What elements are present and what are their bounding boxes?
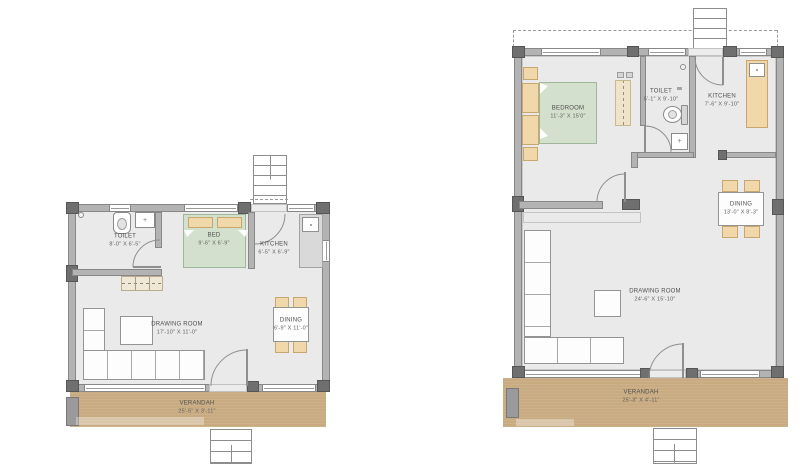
column bbox=[247, 381, 259, 392]
dining-chair bbox=[722, 180, 738, 192]
bed-fold bbox=[184, 230, 194, 240]
room-name: TOILET bbox=[644, 89, 679, 97]
room-label-verandah: VERANDAH 25'-3" X 4'-11" bbox=[622, 390, 659, 405]
kitchen-door-arc bbox=[255, 213, 286, 245]
toilet-wall bbox=[631, 152, 694, 158]
bed-pillow bbox=[217, 217, 242, 228]
column bbox=[66, 380, 79, 392]
room-dims: 13'-0" X 8'-3" bbox=[724, 209, 759, 216]
projection-dashed-line bbox=[777, 30, 778, 47]
room-name: DINING bbox=[274, 318, 308, 326]
room-label-kitchen: KITCHEN 6'-5" X 6'-9" bbox=[258, 242, 289, 257]
coffee-table bbox=[120, 316, 153, 345]
bed-fold bbox=[540, 128, 551, 139]
dining-chair bbox=[275, 341, 289, 353]
shelf-item bbox=[617, 72, 624, 78]
room-label-verandah: VERANDAH 25'-5" X 3'-11" bbox=[178, 401, 215, 416]
wardrobe bbox=[615, 80, 631, 126]
kitchen-sink bbox=[302, 217, 319, 232]
window bbox=[287, 204, 315, 212]
column bbox=[771, 46, 784, 58]
toilet-wc-tank bbox=[681, 105, 688, 125]
ledge-line bbox=[523, 212, 641, 223]
shower-icon bbox=[680, 64, 686, 70]
column bbox=[723, 46, 737, 57]
room-dims: 25'-3" X 4'-11" bbox=[622, 397, 659, 404]
wall-stub bbox=[631, 152, 638, 168]
toilet-wc-bowl bbox=[117, 218, 127, 230]
room-dims: 8'-0" X 6'-5" bbox=[109, 241, 140, 248]
room-dims: 17'-10" X 11'-0" bbox=[151, 329, 203, 336]
room-label-bedroom: BEDROOM 11'-3" X 15'0" bbox=[550, 106, 585, 121]
shelf-item bbox=[626, 72, 633, 78]
room-label-dining: DINING 13'-0" X 8'-3" bbox=[724, 202, 759, 217]
dining-chair bbox=[293, 341, 307, 353]
wall-right bbox=[322, 204, 330, 392]
side-table bbox=[523, 147, 538, 161]
column bbox=[316, 202, 330, 214]
room-label-kitchen: KITCHEN 7'-6" X 9'-10" bbox=[705, 94, 740, 109]
kitchen-door-arc bbox=[695, 57, 723, 85]
washbasin: + bbox=[671, 133, 688, 150]
room-name: KITCHEN bbox=[705, 94, 740, 102]
floor-plan-canvas: + bbox=[0, 0, 800, 464]
room-label-bed: BED 9'-6" X 6'-9" bbox=[198, 233, 229, 248]
coffee-table bbox=[594, 290, 621, 317]
door-opening bbox=[251, 204, 287, 212]
side-table bbox=[523, 67, 538, 80]
column bbox=[771, 366, 784, 378]
window bbox=[109, 204, 131, 212]
steps-bottom-left-plan bbox=[210, 429, 252, 464]
column bbox=[317, 380, 330, 392]
steps-bottom-right-plan bbox=[653, 428, 697, 464]
wall-pier bbox=[718, 150, 727, 160]
room-dims: 9'-6" X 6'-9" bbox=[198, 240, 229, 247]
door-opening bbox=[688, 48, 723, 56]
projection-dashed-line bbox=[250, 199, 288, 200]
room-dims: 11'-3" X 15'0" bbox=[550, 113, 585, 120]
bedroom-wall bbox=[519, 201, 603, 209]
dining-chair bbox=[744, 226, 760, 238]
toilet-door-arc bbox=[645, 126, 671, 152]
verandah-edge bbox=[76, 417, 204, 425]
room-dims: 25'-5" X 3'-11" bbox=[178, 408, 215, 415]
dining-chair bbox=[722, 226, 738, 238]
column bbox=[512, 46, 525, 58]
main-door-arc bbox=[649, 343, 683, 378]
column bbox=[772, 199, 784, 215]
sofa-vertical bbox=[83, 308, 105, 352]
shoe-cabinet bbox=[121, 276, 163, 291]
room-name: VERANDAH bbox=[178, 401, 215, 409]
window bbox=[184, 204, 238, 212]
verandah-column bbox=[506, 388, 519, 418]
window bbox=[84, 384, 206, 392]
sofa-horizontal bbox=[83, 350, 205, 380]
window bbox=[262, 384, 316, 392]
room-name: DRAWING ROOM bbox=[629, 289, 681, 297]
room-label-drawing-room: DRAWING ROOM 24'-6" X 15'-10" bbox=[629, 289, 681, 304]
shower-icon bbox=[78, 212, 84, 218]
stairs-top-right-plan bbox=[693, 8, 727, 49]
dining-chair bbox=[744, 180, 760, 192]
window bbox=[322, 240, 330, 262]
room-name: DINING bbox=[724, 202, 759, 210]
room-name: KITCHEN bbox=[258, 242, 289, 250]
room-name: TOILET bbox=[109, 234, 140, 242]
projection-dashed-line bbox=[513, 30, 514, 47]
room-dims: 5'-1" X 9'-10" bbox=[644, 96, 679, 103]
room-dims: 24'-6" X 15'-10" bbox=[629, 296, 681, 303]
sofa-horizontal bbox=[524, 337, 624, 364]
toilet-wall bbox=[72, 269, 162, 276]
room-dims: 7'-6" X 9'-10" bbox=[705, 101, 740, 108]
sofa-vertical bbox=[524, 230, 551, 337]
washbasin: + bbox=[135, 212, 155, 228]
room-label-toilet: TOILET 5'-1" X 9'-10" bbox=[644, 89, 679, 104]
verandah-edge bbox=[516, 419, 574, 426]
bed-fold bbox=[540, 83, 551, 94]
room-label-drawing-room: DRAWING ROOM 17'-10" X 11'-0" bbox=[151, 322, 203, 337]
kitchen-sink bbox=[749, 63, 765, 77]
window bbox=[648, 48, 686, 56]
room-label-toilet: TOILET 8'-0" X 6'-5" bbox=[109, 234, 140, 249]
column bbox=[627, 46, 639, 57]
wall-left bbox=[514, 48, 522, 378]
basin-plus-icon: + bbox=[143, 217, 147, 224]
room-name: BEDROOM bbox=[550, 106, 585, 114]
bed-wall bbox=[248, 212, 255, 269]
bed-pillow bbox=[522, 83, 539, 113]
window bbox=[739, 48, 767, 56]
room-name: VERANDAH bbox=[622, 390, 659, 398]
wall-left bbox=[68, 204, 76, 392]
toilet-wc-bowl bbox=[668, 110, 677, 119]
window bbox=[541, 48, 601, 56]
basin-plus-icon: + bbox=[677, 138, 681, 145]
main-door-arc bbox=[211, 349, 248, 387]
room-name: DRAWING ROOM bbox=[151, 322, 203, 330]
bed-fold bbox=[238, 230, 248, 240]
kitchen-wall bbox=[721, 152, 776, 158]
room-dims: 6'-9" X 11'-0" bbox=[274, 325, 308, 332]
room-dims: 6'-5" X 6'-9" bbox=[258, 249, 289, 256]
bed-pillow bbox=[522, 115, 539, 145]
window bbox=[700, 370, 760, 378]
bedroom-door-arc bbox=[597, 174, 625, 202]
bed-pillow bbox=[188, 217, 213, 228]
column bbox=[66, 202, 79, 214]
room-label-dining: DINING 6'-9" X 11'-0" bbox=[274, 318, 308, 333]
window bbox=[524, 370, 642, 378]
projection-dashed-line bbox=[513, 30, 777, 31]
room-name: BED bbox=[198, 233, 229, 241]
column bbox=[512, 366, 525, 378]
stairs-top-left-plan bbox=[253, 155, 287, 204]
